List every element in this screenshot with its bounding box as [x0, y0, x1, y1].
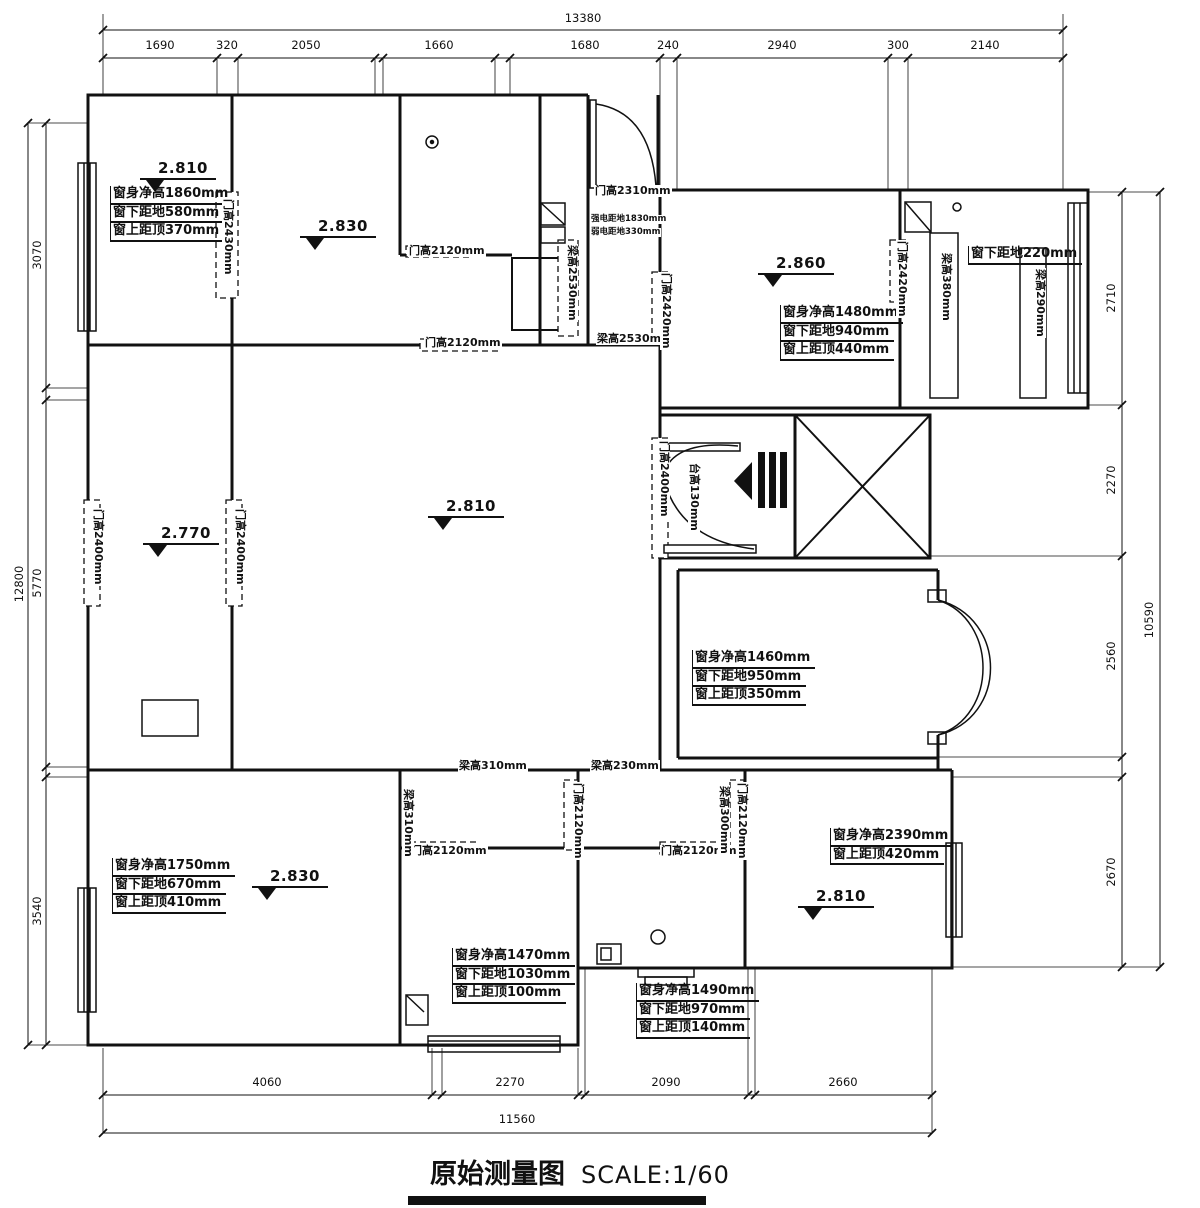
- title-underline-bar: [408, 1196, 706, 1205]
- beam-height-label: 梁高2530mm: [566, 244, 578, 322]
- door-height-label: 门高2400mm: [92, 508, 104, 586]
- beam-height-label: 梁高310mm: [402, 788, 414, 858]
- door-height-label: 门高2120mm: [572, 782, 584, 860]
- door-height-label: 门高2120mm: [408, 245, 486, 257]
- window-annotation: 窗身净高1470mm 窗下距地1030mm 窗上距顶100mm: [452, 948, 575, 1004]
- window-annotation: 窗身净高1480mm 窗下距地940mm 窗上距顶440mm: [780, 305, 903, 361]
- dim-bottom-seg: 2270: [493, 1077, 526, 1089]
- dim-left-seg: 5770: [32, 566, 44, 599]
- elevation-triangle-icon: [306, 238, 324, 250]
- strong-electric-label: 强电距地1830mm: [590, 215, 667, 224]
- door-height-label: 门高2420mm: [896, 240, 908, 318]
- beam-height-label: 梁高310mm: [458, 760, 528, 772]
- elevation-triangle-icon: [764, 275, 782, 287]
- dim-top-seg: 2050: [289, 40, 322, 52]
- dim-right-seg: 2270: [1106, 463, 1118, 496]
- dim-top-total: 13380: [563, 13, 604, 25]
- dim-top-seg: 1690: [143, 40, 176, 52]
- floor-plan-canvas: 13380 1690 320 2050 1660 1680 240 2940 3…: [0, 0, 1200, 1208]
- dim-top-seg: 2940: [765, 40, 798, 52]
- entry-arrow-icon: [734, 452, 787, 508]
- dim-top-seg: 1680: [568, 40, 601, 52]
- elevation-marker: 2.830: [252, 868, 328, 900]
- window-annotation: 窗身净高1490mm 窗下距地970mm 窗上距顶140mm: [636, 983, 759, 1039]
- elevation-marker: 2.770: [143, 525, 219, 557]
- dim-right-seg: 2560: [1106, 639, 1118, 672]
- door-height-label: 门高2120mm: [410, 845, 488, 857]
- dim-left-seg: 3070: [32, 238, 44, 271]
- door-height-label: 门高2420mm: [660, 272, 672, 350]
- elevator-cross-icon: [795, 415, 930, 558]
- dim-right-seg: 2710: [1106, 281, 1118, 314]
- drawing-title: 原始测量图 SCALE:1/60: [430, 1152, 730, 1191]
- elevation-marker: 2.810: [798, 888, 874, 920]
- door-height-label: 门高2430mm: [222, 198, 234, 276]
- door-swing-arcs: [590, 100, 756, 553]
- dim-top-seg: 1660: [422, 40, 455, 52]
- door-height-label: 门高2120mm: [736, 782, 748, 860]
- elevation-triangle-icon: [149, 545, 167, 557]
- elevation-triangle-icon: [804, 908, 822, 920]
- beam-height-label: 梁高300mm: [718, 785, 730, 855]
- weak-electric-label: 弱电距地330mm: [590, 228, 661, 237]
- door-height-label: 门高2120mm: [424, 337, 502, 349]
- dim-right-seg: 2670: [1106, 855, 1118, 888]
- elevation-marker: 2.810: [428, 498, 504, 530]
- elevation-triangle-icon: [258, 888, 276, 900]
- dim-bottom-seg: 2660: [826, 1077, 859, 1089]
- window-annotation: 窗身净高1750mm 窗下距地670mm 窗上距顶410mm: [112, 858, 235, 914]
- door-height-label: 门高2400mm: [234, 508, 246, 586]
- dim-bottom-seg: 4060: [250, 1077, 283, 1089]
- door-height-label: 门高2400mm: [658, 440, 670, 518]
- dim-bottom-total: 11560: [497, 1114, 538, 1126]
- dim-left-total: 12800: [14, 564, 26, 605]
- window-annotation: 窗身净高2390mm 窗上距顶420mm: [830, 828, 953, 865]
- elevation-marker: 2.830: [300, 218, 376, 250]
- dim-right-total: 10590: [1144, 600, 1156, 641]
- step-height-label: 台高130mm: [688, 462, 700, 532]
- dim-left-seg: 3540: [32, 894, 44, 927]
- title-scale: SCALE:1/60: [581, 1161, 730, 1189]
- beam-height-label: 梁高230mm: [590, 760, 660, 772]
- dim-top-seg: 240: [655, 40, 681, 52]
- title-text: 原始测量图: [430, 1152, 565, 1191]
- dim-top-seg: 320: [214, 40, 240, 52]
- window-annotation: 窗身净高1860mm 窗下距地580mm 窗上距顶370mm: [110, 186, 233, 242]
- dim-top-seg: 300: [885, 40, 911, 52]
- window-annotation: 窗身净高1460mm 窗下距地950mm 窗上距顶350mm: [692, 650, 815, 706]
- door-height-label: 门高2310mm: [594, 185, 672, 197]
- elevation-marker: 2.860: [758, 255, 834, 287]
- dim-bottom-seg: 2090: [649, 1077, 682, 1089]
- beam-height-label: 梁高290mm: [1034, 268, 1046, 338]
- dim-top-seg: 2140: [968, 40, 1001, 52]
- elevation-triangle-icon: [434, 518, 452, 530]
- window-annotation: 窗下距地220mm: [968, 246, 1082, 265]
- beam-height-label: 梁高380mm: [940, 252, 952, 322]
